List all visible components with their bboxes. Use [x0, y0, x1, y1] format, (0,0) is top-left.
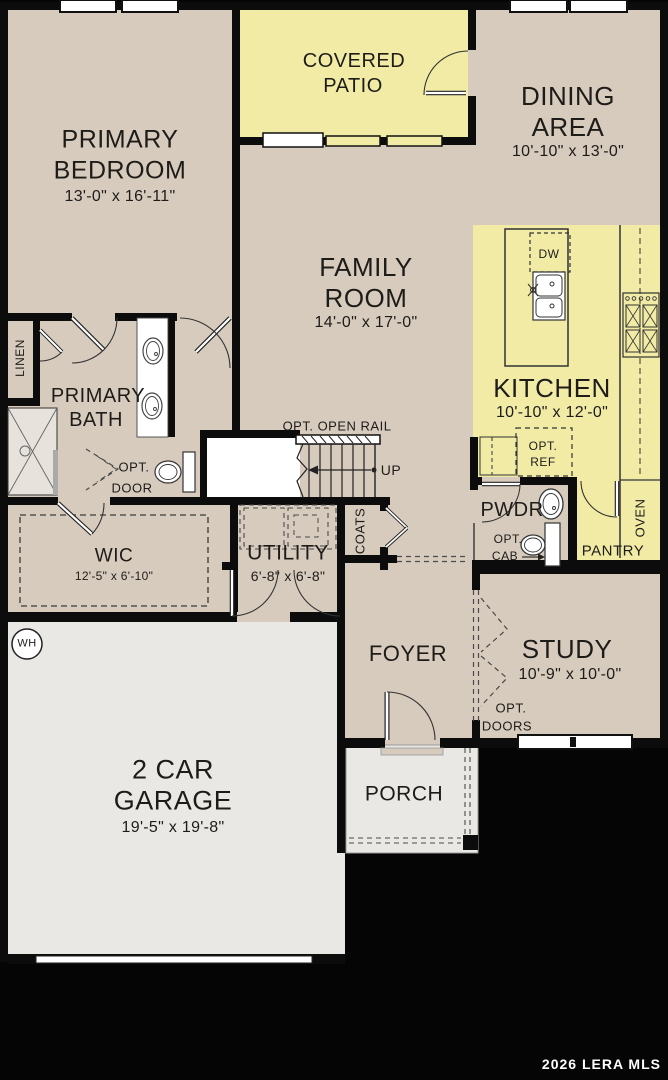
opt-cab-label-2: CAB	[492, 550, 518, 562]
bedroom-window-2	[122, 0, 178, 12]
primary-bedroom-dims: 13'-0" x 16'-11"	[65, 189, 176, 205]
opt-ref-label-2: REF	[530, 456, 556, 468]
family-room-dims: 14'-0" x 17'-0"	[315, 315, 418, 331]
utility-dims: 6'-8" x 6'-8"	[251, 569, 325, 583]
sliding-door-panel-1	[326, 136, 380, 146]
garage-dims: 19'-5" x 19'-8"	[122, 820, 225, 836]
kitchen-dims: 10'-10" x 12'-0"	[496, 405, 608, 421]
floor-plan: PRIMARY BEDROOM 13'-0" x 16'-11" COVERED…	[0, 0, 668, 1080]
stair-void	[207, 438, 300, 497]
dining-area-dims: 10'-10" x 13'-0"	[512, 144, 624, 160]
bedroom-window-1	[60, 0, 116, 12]
primary-bath-label-2: BATH	[69, 410, 123, 430]
garage-label-2: GARAGE	[114, 788, 233, 815]
primary-bedroom-label-2: BEDROOM	[54, 159, 187, 184]
garage-label: 2 CAR	[132, 757, 214, 784]
utility-label: UTILITY	[247, 543, 329, 564]
pwdr-label: PWDR	[480, 500, 543, 520]
bath-toilet-tank	[183, 452, 195, 492]
dining-area-label-2: AREA	[532, 114, 605, 140]
watermark: 2026 LERA MLS	[542, 1057, 661, 1071]
kitchen-label: KITCHEN	[493, 375, 611, 401]
opt-open-rail-label: OPT. OPEN RAIL	[283, 420, 392, 433]
up-label: UP	[381, 463, 401, 477]
wic-dims: 12'-5" x 6'-10"	[75, 570, 153, 582]
oven-label: OVEN	[634, 499, 647, 538]
study-label: STUDY	[522, 636, 613, 662]
kitchen-floor	[473, 225, 660, 477]
opt-cab-label: OPT.	[494, 533, 523, 545]
foyer-label: FOYER	[369, 643, 447, 665]
linen-label: LINEN	[14, 339, 26, 377]
dining-window-2	[570, 0, 627, 12]
coats-label: COATS	[354, 508, 367, 554]
opt-ref-label: OPT.	[529, 440, 558, 452]
sliding-door-panel-2	[387, 136, 442, 146]
opt-doors-label: OPT.	[496, 702, 527, 715]
family-room-label: FAMILY	[319, 254, 413, 280]
dishwasher-label: DW	[539, 248, 560, 260]
family-room-label-2: ROOM	[325, 285, 408, 311]
family-room-window	[263, 133, 323, 147]
covered-patio-floor	[240, 10, 468, 137]
pantry-label: PANTRY	[582, 544, 644, 559]
garage-door	[36, 956, 312, 963]
opt-door-label: OPT.	[119, 461, 150, 474]
covered-patio-label-2: PATIO	[323, 76, 383, 96]
covered-patio-label: COVERED	[303, 51, 405, 71]
primary-bedroom-label: PRIMARY	[62, 128, 179, 153]
dining-window-1	[510, 0, 567, 12]
opt-doors-label-2: DOORS	[482, 720, 532, 733]
study-dims: 10'-9" x 10'-0"	[519, 667, 622, 683]
wic-label: WIC	[95, 547, 133, 566]
opt-door-label-2: DOOR	[112, 482, 153, 495]
shower-glass	[53, 450, 58, 495]
porch-label: PORCH	[365, 784, 443, 805]
front-door-threshold	[381, 748, 443, 755]
study-window-mullion	[570, 737, 576, 747]
water-heater-label: WH	[17, 639, 36, 650]
primary-bath-label: PRIMARY	[51, 386, 145, 406]
opt-cabinet	[545, 523, 560, 566]
dining-area-label: DINING	[521, 83, 615, 109]
